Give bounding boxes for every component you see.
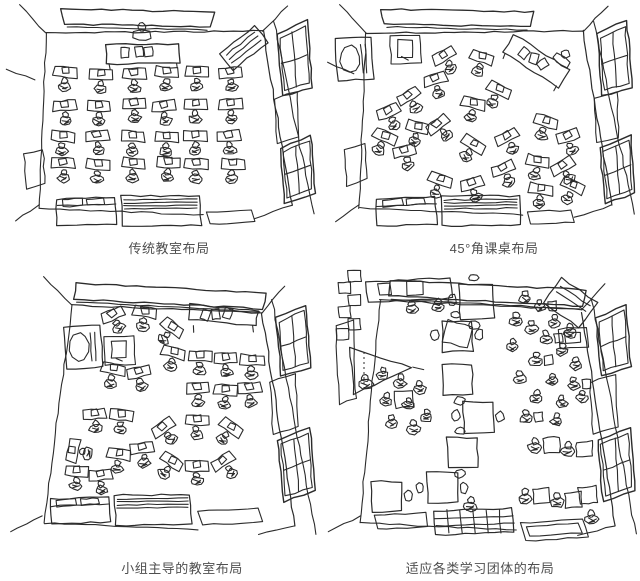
student-figure [576,391,589,403]
student-figure [471,62,486,78]
student-desk [185,414,210,440]
folding-screen [336,270,361,340]
student-desk [129,441,156,470]
student-figure [159,111,173,126]
figure-group-led-layout: 小组主导的教室布局 [0,262,320,581]
grid-bench [434,508,515,536]
student-figure [457,145,476,164]
student-figure [223,141,238,155]
floor-mat [527,210,574,224]
student-desk [51,65,78,93]
student-desk [217,129,243,155]
student-figure [549,315,561,328]
student-desk [120,157,145,184]
student-figure [57,170,70,183]
student-desk [88,468,114,495]
book-bin [114,494,192,526]
student-desk [50,130,76,157]
student-desk [97,361,127,391]
student-desk [149,416,184,451]
student-desk [186,382,210,407]
student-figure [191,394,205,407]
student-figure [513,371,526,384]
student-figure [560,190,576,207]
student-figure [432,298,444,311]
student-figure [95,481,107,496]
student-desk [84,158,110,184]
group-led-layout-drawing [0,262,320,554]
student-with-cushion [519,487,550,504]
display-board [543,276,598,329]
student-figure [160,143,172,157]
student-desk [237,382,263,409]
figure-traditional-layout: 传统教室布局 [0,0,320,262]
student-figure [559,168,577,186]
student-desk [104,447,132,475]
student-figure [550,413,562,426]
caption-traditional: 传统教室布局 [9,238,329,257]
student-desk [64,465,89,491]
student-figure [190,78,203,91]
low-shelf [50,497,110,524]
student-figure [128,79,141,93]
student-figure [359,375,374,389]
adaptive-groups-layout-drawing [320,262,640,554]
student-figure [189,170,203,184]
student-desk [424,112,458,146]
papers [517,46,530,59]
student-desk [151,99,178,126]
window [277,428,315,503]
window [600,135,634,204]
student-figure [134,377,149,392]
student-figure [126,143,138,157]
student-desk [526,182,555,211]
student-figure [94,80,106,93]
group-table [446,427,478,478]
group-table [430,312,482,353]
student-desk [151,315,186,350]
group-table [371,481,413,513]
student-figure [125,168,139,183]
student-desk [554,176,586,209]
student-figure [509,312,522,326]
student-figure [528,166,543,181]
window [276,306,311,376]
student-figure [225,79,239,92]
student-desk [51,157,76,183]
window [595,305,631,376]
student-desk [89,69,113,94]
student-desk [153,66,179,92]
group-table [442,364,473,405]
student-desk [185,460,210,486]
student-desk [493,127,525,159]
student-figure [128,109,143,123]
student-figure [137,454,152,469]
student-figure [406,301,418,313]
caption-adaptive: 适应各类学习团体的布局 [320,558,640,577]
student-figure [93,141,105,155]
student-figure [520,410,532,423]
student-desk [239,354,266,381]
student-figure [563,323,576,338]
student-figure [519,291,531,304]
blackboard [74,283,267,312]
student-desk [151,450,185,484]
student-figure [564,141,580,156]
group-table [452,401,505,433]
student-desk [99,305,132,338]
student-desk [218,98,244,125]
papers [144,47,154,57]
student-figure [528,352,542,365]
student-desk [479,79,513,113]
student-figure [104,374,119,390]
student-desk [210,450,245,485]
student-figure [114,421,127,434]
student-figure [136,317,152,333]
student-figure [376,367,387,379]
tv-stand [390,35,422,64]
student-figure [530,389,542,403]
student-desk [396,85,429,119]
student-desk [218,66,243,92]
student-with-cushion [560,441,593,457]
student-figure [532,194,545,210]
book-bin [121,195,202,226]
student-desk [183,157,209,184]
figure-angled-desks-layout: 45°角课桌布局 [320,0,640,262]
student-figure [386,415,398,429]
student-desk [453,133,488,168]
student-figure [527,438,541,454]
student-figure [68,477,82,491]
caption-group-led: 小组主导的教室布局 [22,558,342,577]
student-desk [555,128,584,158]
student-desk [87,100,110,126]
student-figure [109,317,127,335]
figure-adaptive-groups-layout: 适应各类学习团体的布局 [320,262,640,581]
window [598,428,635,502]
student-figure [110,459,125,474]
student-desk [122,68,147,93]
student-figure [463,108,477,122]
student-desk [184,66,209,92]
student-figure [225,169,238,184]
student-desk [188,350,213,375]
student-figure [380,392,392,406]
student-figure [570,357,582,371]
student-desk [184,99,208,123]
student-figure [58,77,72,93]
student-figure [245,365,259,380]
student-desk [157,344,187,374]
student-with-cushion [527,437,560,454]
angled-desks-layout-drawing [320,0,640,236]
student-figure [161,168,174,182]
student-figure [78,446,93,461]
student-desk [402,119,430,149]
tv-stand [104,336,136,366]
student-desk [183,130,208,155]
student-figure [189,141,200,155]
group-table [416,472,468,504]
teacher-figure [552,46,575,69]
student-desk [122,97,147,123]
student-figure [393,374,407,389]
student-figure [519,488,532,504]
student-desk [522,153,550,182]
window [277,20,312,96]
student-desk [213,352,238,377]
student-desk [121,130,146,157]
student-figure [556,395,568,408]
student-figure [421,409,432,421]
classroom-layouts-sheet: 传统教室布局 45°角课桌布局 小组主导的教室布局 适应各类学习团体的布局 [0,0,640,581]
student-desk [457,95,487,123]
student-figure [191,426,203,440]
papers [121,47,130,58]
student-figure [55,142,69,156]
student-desk [154,131,179,156]
student-desk [85,129,111,156]
student-figure [191,472,204,485]
student-desk [210,416,245,451]
student-figure [400,156,415,172]
student-desk [65,438,94,467]
blackboard [381,9,534,30]
student-desk [83,408,108,433]
student-figure [193,362,207,375]
student-figure [156,328,174,346]
floor-mat [206,210,255,224]
student-desk [126,364,154,393]
caption-angled: 45°角课桌布局 [334,238,640,257]
student-desk [464,48,495,79]
student-figure [414,381,427,395]
media-cart [335,37,374,81]
student-figure [525,321,539,335]
student-figure [155,462,174,481]
teacher-desk [106,44,181,69]
student-figure [162,429,179,447]
student-desk [392,144,419,173]
student-with-cushion [551,491,582,508]
student-figure [560,441,575,456]
student-figure [546,373,558,385]
student-figure [220,363,233,376]
traditional-layout-drawing [0,0,320,236]
student-figure [215,429,232,447]
student-figure [585,510,599,524]
student-figure [431,84,446,99]
rug [520,519,588,541]
student-desk [549,155,583,189]
student-figure [90,170,105,183]
student-desk [529,112,560,143]
student-figure [217,396,231,410]
student-desk [220,157,246,185]
student-figure [225,109,237,124]
student-figure [507,338,518,352]
student-desk [108,408,134,435]
student-figure [551,493,564,508]
student-figure [93,112,105,126]
student-desk [52,99,78,125]
floor-mat [198,508,263,525]
student-figure [159,78,173,91]
papers [135,46,144,57]
student-figure [557,343,568,356]
student-figure [189,110,202,123]
student-figure [568,377,581,390]
student-figure [245,394,258,408]
student-figure [540,330,552,344]
student-desk [490,159,522,192]
student-desk [212,383,238,409]
student-desk [375,102,407,135]
student-desk [156,156,181,182]
student-figure [60,111,71,125]
book-bin [441,195,520,226]
student-desk [422,71,452,101]
student-figure [163,356,179,372]
student-figure [88,419,103,433]
student-figure [437,125,454,142]
student-figure [406,420,420,435]
